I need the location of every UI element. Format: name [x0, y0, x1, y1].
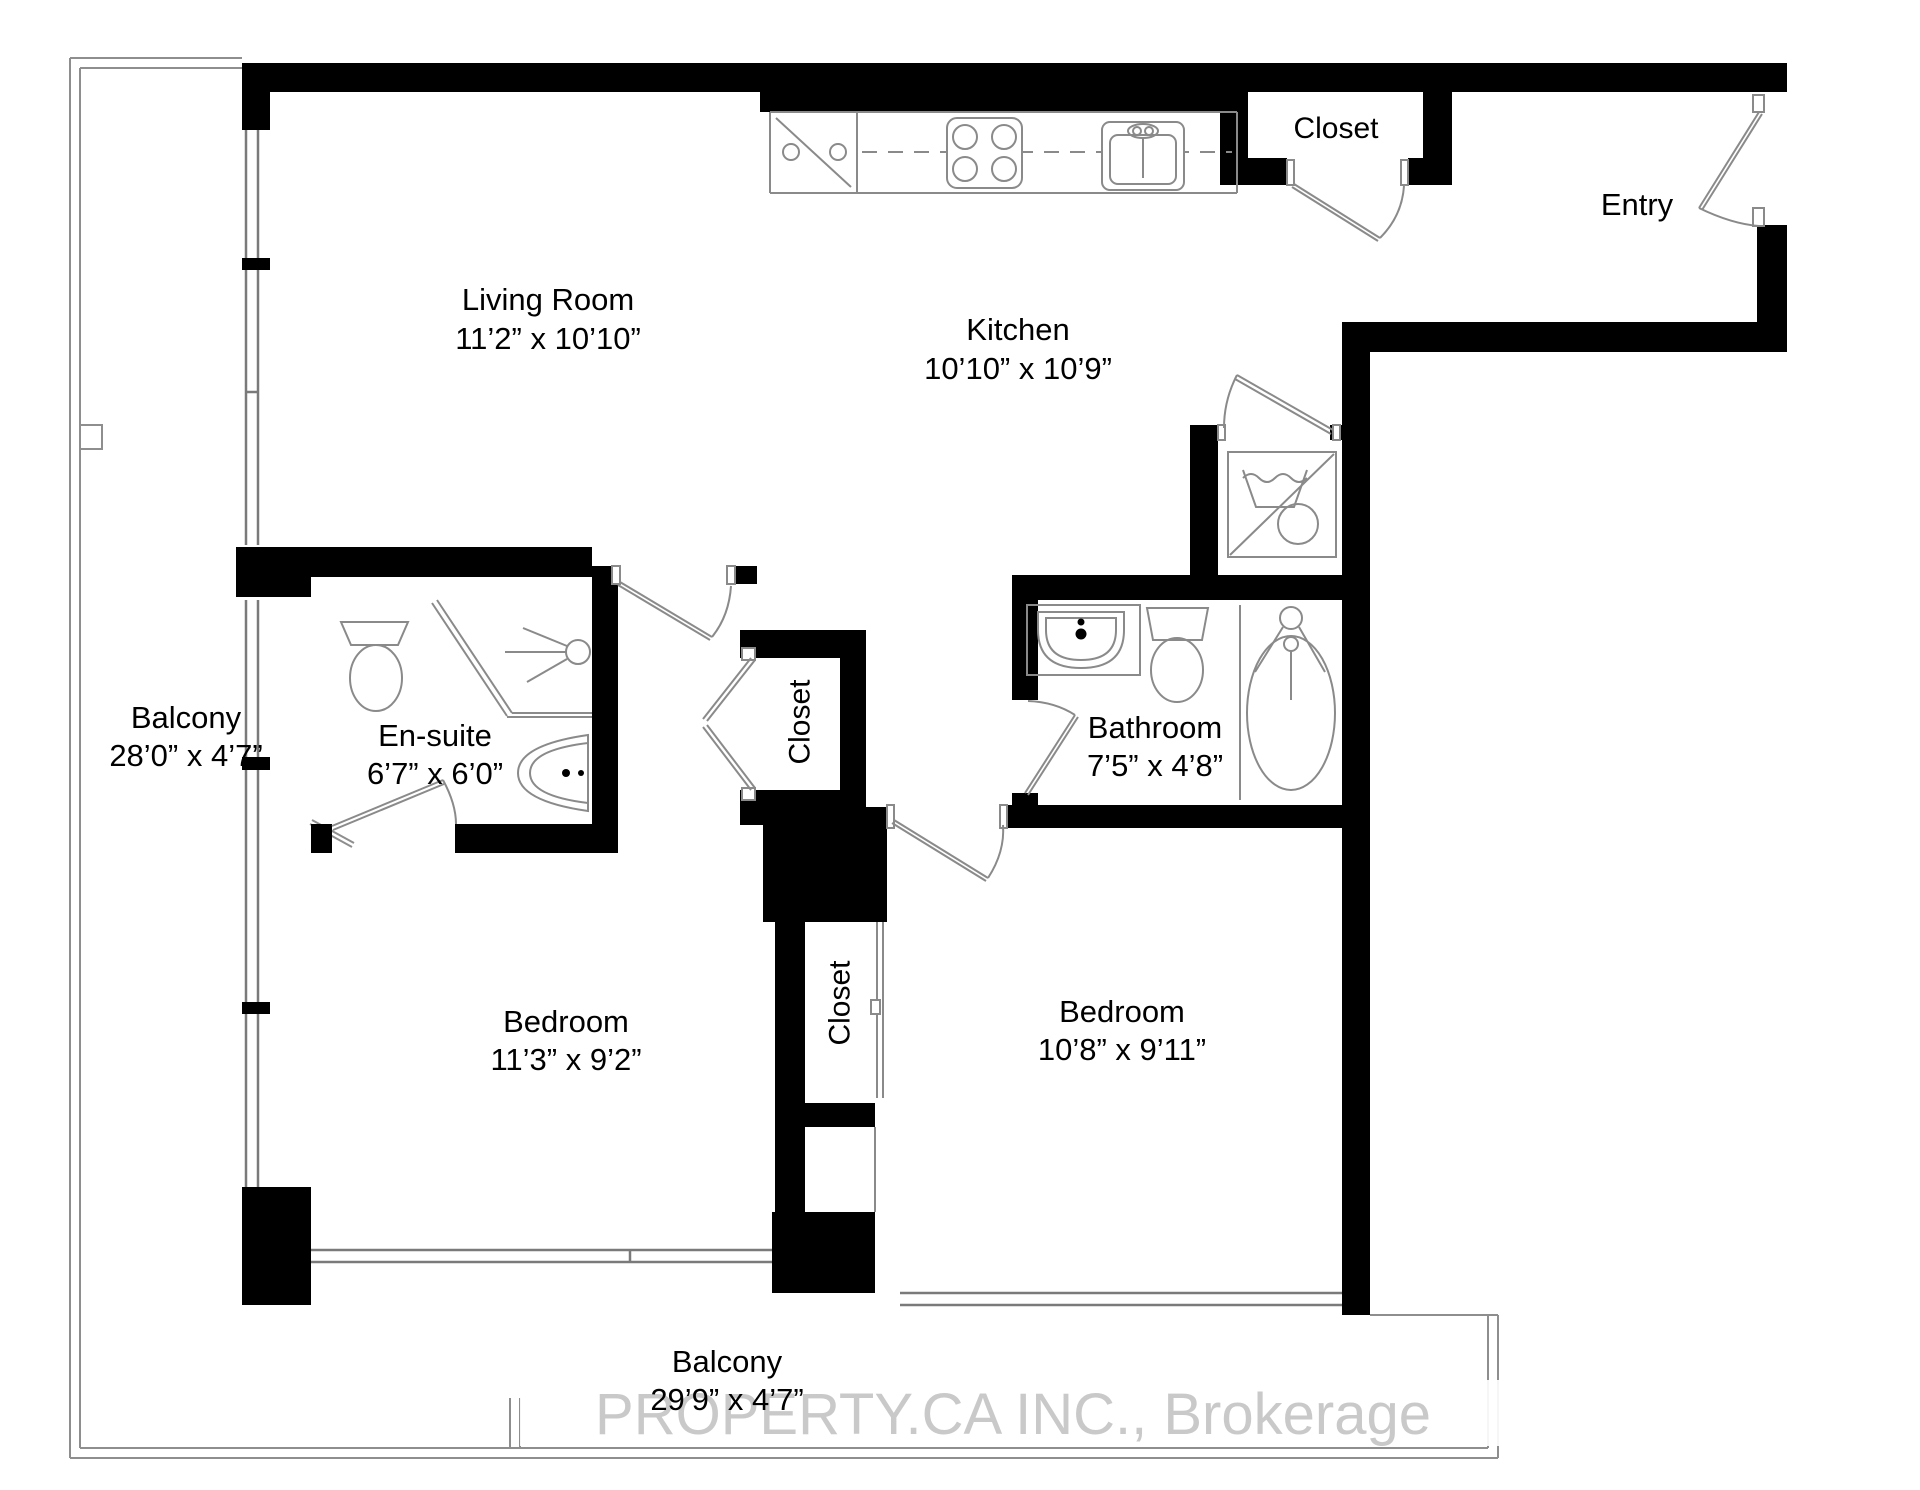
- window-left-wall: [246, 130, 258, 1187]
- kitchen-label: Kitchen: [966, 312, 1069, 347]
- balcony-bottom-label: Balcony: [672, 1344, 783, 1379]
- wall: [236, 547, 311, 597]
- wall: [1007, 805, 1370, 828]
- wall: [735, 566, 757, 584]
- ensuite-label: En-suite: [378, 718, 492, 753]
- bathtub-icon: [1240, 605, 1335, 800]
- wall: [1342, 322, 1787, 352]
- shower-head-icon: [1255, 607, 1325, 700]
- wall: [311, 824, 332, 853]
- floorplan-drawing: PROPERTY.CA INC., Brokerage Living Room …: [0, 0, 1920, 1490]
- entry-door: [1699, 95, 1764, 226]
- hall-closet-label: Closet: [784, 679, 817, 765]
- dishwasher-icon: [776, 118, 851, 187]
- wall: [1408, 158, 1423, 185]
- entry-label: Entry: [1601, 187, 1674, 222]
- wall: [772, 1212, 875, 1293]
- hall-closet-bifold-doors: [703, 648, 755, 800]
- bedroom-closet-slider: [871, 922, 883, 1212]
- wall: [242, 63, 270, 130]
- ensuite-toilet-icon: [341, 622, 408, 711]
- wall: [242, 1187, 311, 1305]
- pedestal-sink-icon: [518, 735, 588, 811]
- wall: [805, 1103, 875, 1127]
- walls: [236, 63, 1787, 1315]
- window-bedroom-right: [900, 1293, 1342, 1305]
- wall: [1012, 793, 1038, 807]
- toilet-icon: [1147, 608, 1208, 702]
- bedroom-right-label: Bedroom: [1059, 994, 1185, 1029]
- ensuite-dims: 6’7” x 6’0”: [367, 756, 503, 791]
- balcony-left-label: Balcony: [131, 700, 242, 735]
- kitchen-sink-icon: [1102, 122, 1184, 190]
- vanity-sink-icon: [1027, 605, 1140, 675]
- kitchen-fixtures: [770, 112, 1237, 193]
- wall: [592, 566, 618, 853]
- hallway-door: [612, 566, 735, 640]
- wall: [242, 1002, 270, 1014]
- wall: [1012, 575, 1370, 600]
- balcony-post: [80, 425, 102, 449]
- balcony-bottom-dims: 29’9” x 4’7”: [650, 1382, 803, 1417]
- entry-closet-door: [1287, 160, 1408, 241]
- balcony-left-dims: 28’0” x 4’7”: [109, 738, 262, 773]
- wall: [760, 92, 1240, 112]
- bedroom-left-label: Bedroom: [503, 1004, 629, 1039]
- bathroom-label: Bathroom: [1088, 710, 1222, 745]
- wall: [1220, 92, 1248, 185]
- living-room-label: Living Room: [462, 282, 634, 317]
- wall: [775, 922, 805, 1212]
- wall: [455, 824, 592, 853]
- floorplan-page: PROPERTY.CA INC., Brokerage Living Room …: [0, 0, 1920, 1490]
- entry-closet-label: Closet: [1293, 112, 1379, 145]
- living-room-dims: 11’2” x 10’10”: [455, 321, 641, 356]
- kitchen-dims: 10’10” x 10’9”: [924, 351, 1112, 386]
- bedroom-right-dims: 10’8” x 9’11”: [1038, 1032, 1206, 1067]
- shower-stall-icon: [432, 600, 592, 717]
- washer-dryer-icon: [1228, 452, 1336, 557]
- window-bedroom-left: [311, 1250, 772, 1262]
- wall: [763, 807, 887, 922]
- wall: [311, 547, 592, 577]
- bathroom-dims: 7’5” x 4’8”: [1087, 748, 1223, 783]
- wall: [242, 258, 270, 270]
- wall: [1248, 158, 1287, 185]
- wall: [1423, 92, 1452, 185]
- bedroom-left-dims: 11’3” x 9’2”: [490, 1042, 641, 1077]
- bedroom-closet-label: Closet: [824, 960, 857, 1046]
- stove-icon: [947, 118, 1022, 188]
- wall: [242, 63, 1787, 92]
- wall: [1012, 600, 1038, 700]
- bedroom-right-door: [887, 805, 1007, 881]
- wall: [1190, 425, 1218, 575]
- bathroom-door: [1025, 701, 1078, 795]
- laundry-door: [1218, 375, 1340, 440]
- room-labels: Living Room 11’2” x 10’10” Kitchen 10’10…: [109, 112, 1673, 1417]
